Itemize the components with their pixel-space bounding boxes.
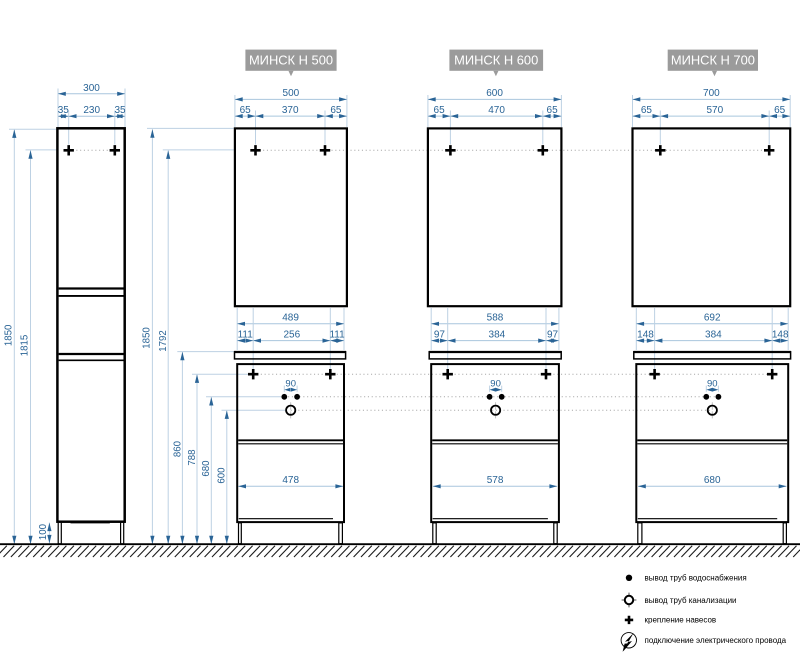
- svg-text:65: 65: [641, 105, 653, 116]
- svg-text:148: 148: [772, 330, 789, 341]
- svg-text:700: 700: [703, 88, 720, 99]
- svg-text:384: 384: [705, 330, 722, 341]
- svg-text:600: 600: [486, 88, 503, 99]
- svg-text:384: 384: [489, 330, 506, 341]
- svg-text:вывод труб канализации: вывод труб канализации: [645, 596, 737, 605]
- svg-text:65: 65: [330, 105, 342, 116]
- svg-text:600: 600: [217, 467, 228, 484]
- svg-text:1815: 1815: [20, 335, 31, 357]
- svg-text:100: 100: [38, 523, 49, 540]
- svg-text:680: 680: [201, 460, 212, 477]
- svg-text:1792: 1792: [158, 330, 169, 352]
- svg-text:370: 370: [282, 105, 299, 116]
- svg-text:97: 97: [434, 330, 446, 341]
- svg-text:МИНСК Н 600: МИНСК Н 600: [454, 53, 538, 68]
- svg-text:570: 570: [706, 105, 723, 116]
- svg-text:470: 470: [488, 105, 505, 116]
- svg-text:256: 256: [283, 330, 300, 341]
- svg-text:35: 35: [58, 105, 70, 116]
- svg-text:подключение электрического про: подключение электрического провода: [645, 636, 787, 645]
- svg-text:478: 478: [282, 475, 299, 486]
- svg-text:крепление навесов: крепление навесов: [645, 616, 717, 625]
- svg-text:МИНСК Н 700: МИНСК Н 700: [671, 53, 755, 68]
- svg-text:65: 65: [774, 105, 786, 116]
- svg-text:35: 35: [114, 105, 126, 116]
- svg-text:вывод труб водоснабжения: вывод труб водоснабжения: [645, 574, 747, 583]
- svg-text:111: 111: [238, 330, 254, 341]
- svg-text:111: 111: [329, 330, 345, 341]
- svg-text:588: 588: [487, 313, 504, 324]
- svg-text:148: 148: [637, 330, 654, 341]
- svg-text:230: 230: [83, 105, 100, 116]
- svg-text:65: 65: [434, 105, 446, 116]
- svg-text:97: 97: [547, 330, 559, 341]
- svg-text:578: 578: [487, 475, 504, 486]
- svg-text:680: 680: [704, 475, 721, 486]
- svg-text:65: 65: [547, 105, 559, 116]
- svg-text:788: 788: [187, 449, 198, 465]
- svg-text:860: 860: [172, 440, 183, 457]
- svg-text:500: 500: [283, 88, 300, 99]
- svg-text:692: 692: [704, 313, 721, 324]
- svg-text:МИНСК Н 500: МИНСК Н 500: [249, 53, 333, 68]
- svg-text:300: 300: [83, 83, 100, 94]
- svg-text:489: 489: [282, 313, 299, 324]
- svg-text:1850: 1850: [3, 324, 14, 346]
- svg-text:65: 65: [240, 105, 252, 116]
- svg-text:1850: 1850: [142, 327, 153, 349]
- svg-text:90: 90: [285, 379, 296, 390]
